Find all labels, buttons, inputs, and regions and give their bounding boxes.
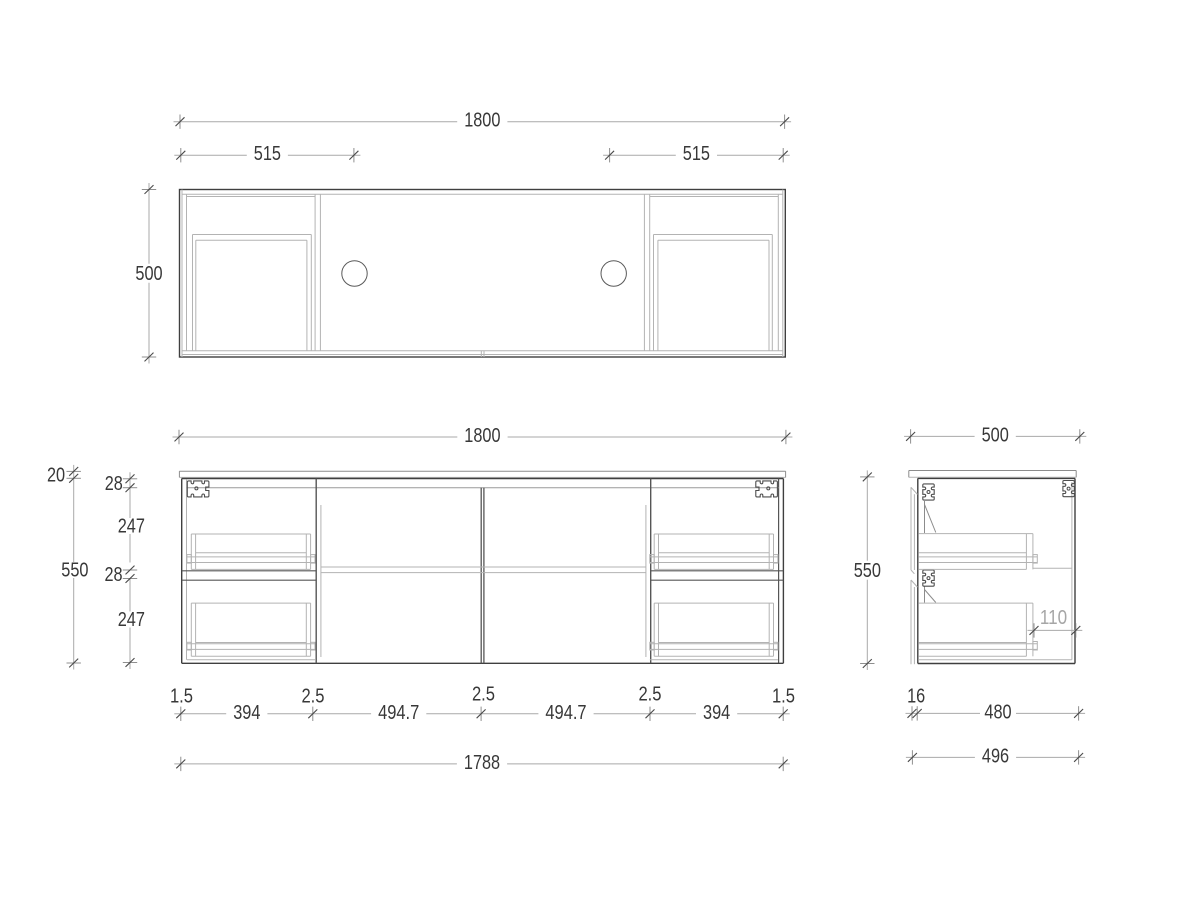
svg-text:1788: 1788 bbox=[464, 752, 500, 774]
svg-text:1.5: 1.5 bbox=[772, 685, 795, 707]
svg-text:2.5: 2.5 bbox=[301, 685, 324, 707]
svg-text:480: 480 bbox=[984, 701, 1011, 723]
svg-text:28: 28 bbox=[105, 473, 123, 495]
svg-text:1800: 1800 bbox=[464, 425, 500, 447]
svg-text:16: 16 bbox=[907, 685, 925, 707]
svg-text:496: 496 bbox=[982, 745, 1009, 767]
svg-text:394: 394 bbox=[703, 702, 730, 724]
svg-text:494.7: 494.7 bbox=[545, 702, 586, 724]
svg-text:28: 28 bbox=[104, 564, 122, 586]
svg-text:110: 110 bbox=[1040, 607, 1067, 629]
svg-text:2.5: 2.5 bbox=[472, 684, 495, 706]
svg-text:550: 550 bbox=[61, 560, 88, 582]
svg-text:494.7: 494.7 bbox=[378, 702, 419, 724]
svg-text:500: 500 bbox=[982, 424, 1009, 446]
svg-text:1800: 1800 bbox=[464, 110, 500, 132]
svg-text:394: 394 bbox=[233, 702, 260, 724]
svg-text:247: 247 bbox=[118, 609, 145, 631]
svg-text:515: 515 bbox=[683, 143, 710, 165]
svg-text:550: 550 bbox=[854, 560, 881, 582]
svg-text:1.5: 1.5 bbox=[170, 685, 193, 707]
svg-text:500: 500 bbox=[135, 263, 162, 285]
svg-text:2.5: 2.5 bbox=[638, 684, 661, 706]
svg-text:515: 515 bbox=[254, 143, 281, 165]
svg-text:20: 20 bbox=[47, 465, 65, 487]
svg-text:247: 247 bbox=[118, 515, 145, 537]
